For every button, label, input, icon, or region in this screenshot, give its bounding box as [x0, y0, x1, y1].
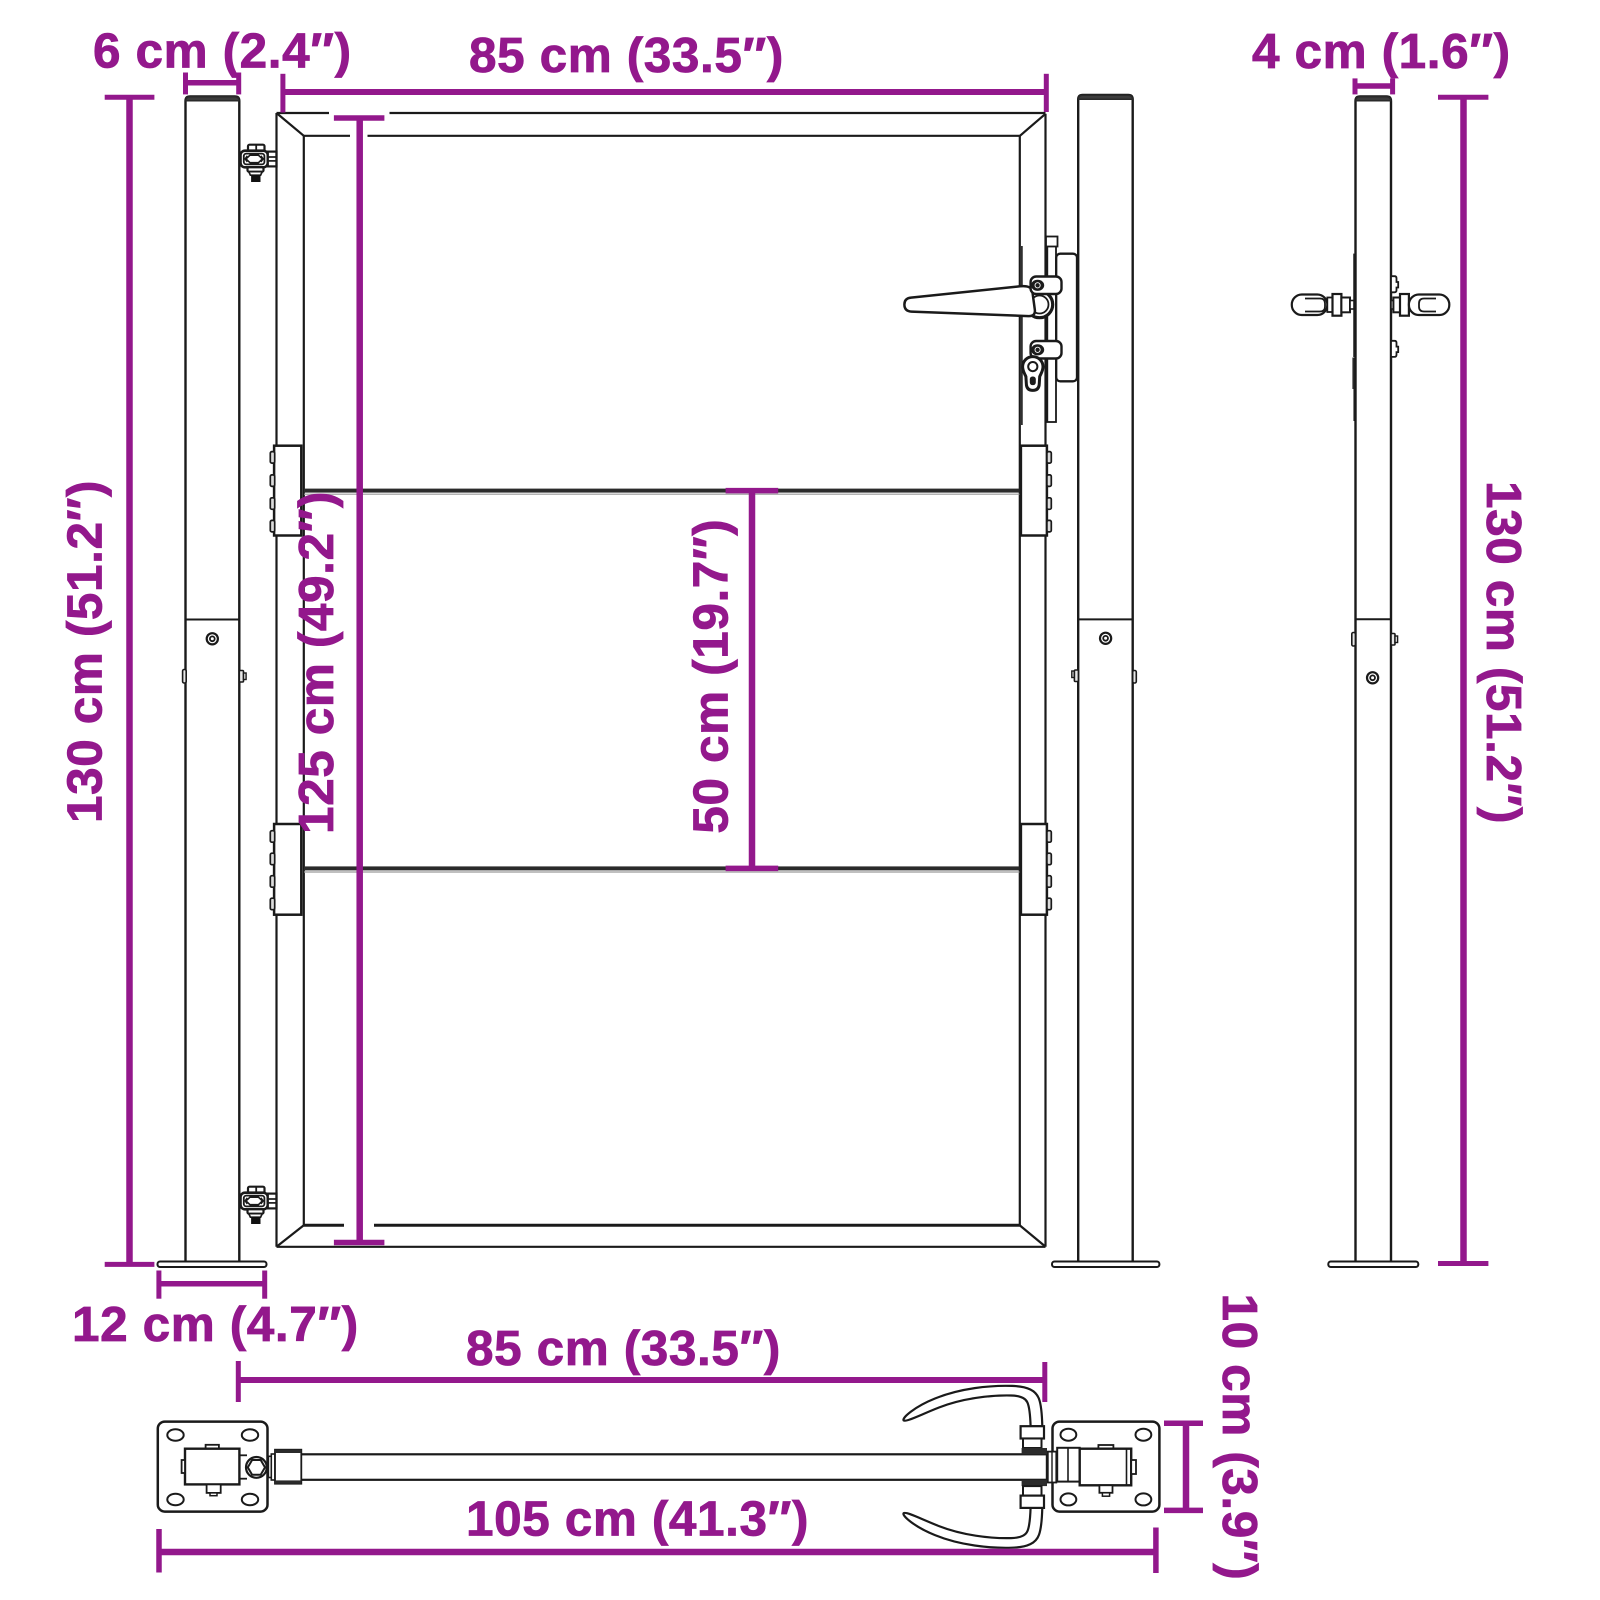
- svg-text:85 cm (33.5″): 85 cm (33.5″): [469, 28, 784, 83]
- svg-text:85 cm (33.5″): 85 cm (33.5″): [466, 1321, 781, 1376]
- svg-text:105 cm (41.3″): 105 cm (41.3″): [466, 1492, 809, 1547]
- svg-text:130 cm (51.2″): 130 cm (51.2″): [1476, 481, 1531, 824]
- svg-text:130 cm (51.2″): 130 cm (51.2″): [58, 480, 113, 823]
- svg-text:10 cm (3.9″): 10 cm (3.9″): [1212, 1294, 1267, 1581]
- svg-text:125 cm (49.2″): 125 cm (49.2″): [289, 491, 344, 834]
- svg-text:12 cm (4.7″): 12 cm (4.7″): [72, 1297, 359, 1352]
- svg-text:50 cm (19.7″): 50 cm (19.7″): [683, 519, 738, 834]
- svg-text:6 cm (2.4″): 6 cm (2.4″): [93, 24, 352, 79]
- svg-text:4 cm (1.6″): 4 cm (1.6″): [1252, 24, 1511, 79]
